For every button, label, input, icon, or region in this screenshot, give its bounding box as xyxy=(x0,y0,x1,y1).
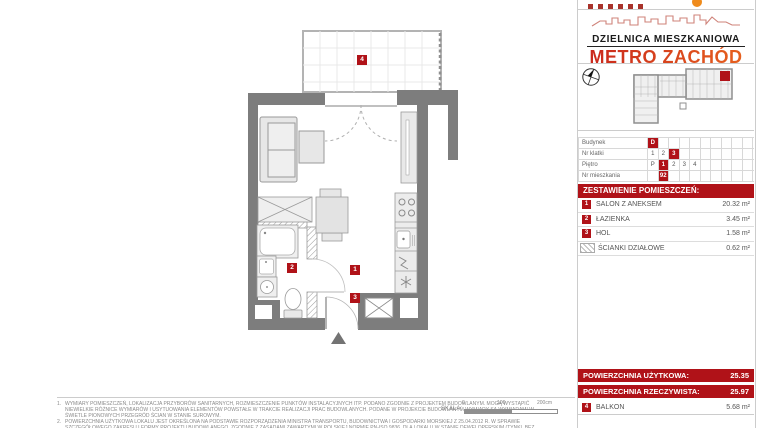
unit-grid-cell xyxy=(743,171,754,181)
unit-grid-cell xyxy=(701,171,712,181)
unit-grid-cell: 2 xyxy=(659,149,670,159)
usable-area-value: 25.35 xyxy=(730,371,749,380)
unit-grid-cell xyxy=(722,138,733,148)
dining-set xyxy=(316,189,348,241)
room-area-value: 1.58 m² xyxy=(726,230,754,237)
footnote-number: 2. xyxy=(57,419,65,428)
room-row: 1SALON Z ANEKSEM20.32 m² xyxy=(578,198,754,213)
cropped-logo-orange-dot-icon xyxy=(692,0,702,7)
brand-logo: DZIELNICA MIESZKANIOWA METRO ZACHÓD xyxy=(578,10,754,64)
room-name: ŁAZIENKA xyxy=(596,216,726,223)
unit-grid-cell xyxy=(711,171,722,181)
unit-grid-row: PiętroP1234 xyxy=(579,160,754,171)
unit-grid-cell xyxy=(732,171,743,181)
total-usable-area-bar: POWIERZCHNIA UŻYTKOWA: 25.35 xyxy=(578,369,754,382)
actual-area-label: POWIERZCHNIA RZECZYWISTA: xyxy=(583,387,700,396)
unit-grid-cell: 1 xyxy=(648,149,659,159)
unit-grid-cell xyxy=(743,138,754,148)
unit-grid-cell xyxy=(722,171,733,181)
unit-grid-row-label: Budynek xyxy=(579,138,648,148)
bathroom-door xyxy=(312,259,345,292)
scale-bar-filled-half xyxy=(465,410,512,413)
unit-grid-cell xyxy=(711,138,722,148)
total-actual-area-bar: POWIERZCHNIA RZECZYWISTA: 25.97 xyxy=(578,385,754,398)
room-area-value: 3.45 m² xyxy=(726,216,754,223)
footnote-item: 2.POWIERZCHNIA UŻYTKOWA LOKALU JEST OKRE… xyxy=(57,419,535,428)
balcony-area-value: 5.68 m² xyxy=(726,404,754,411)
toilet xyxy=(284,289,302,319)
room-number: 1 xyxy=(582,200,591,209)
room-row: ŚCIANKI DZIAŁOWE0.62 m² xyxy=(578,242,754,257)
room-area-value: 0.62 m² xyxy=(726,245,754,252)
room-row: 2ŁAZIENKA3.45 m² xyxy=(578,213,754,228)
compass-icon xyxy=(580,66,602,88)
room-number: 2 xyxy=(582,215,591,224)
unit-grid-cell xyxy=(711,149,722,159)
brand-name: DZIELNICA MIESZKANIOWA xyxy=(578,34,754,45)
unit-grid-cell xyxy=(743,160,754,170)
balcony-name: BALKON xyxy=(596,404,726,411)
plan-label-hol: 3 xyxy=(350,293,360,303)
unit-grid-cell xyxy=(711,160,722,170)
wall-niche-right xyxy=(400,298,418,318)
shaft xyxy=(365,298,393,318)
unit-grid-cell xyxy=(732,160,743,170)
scale-tick-0: 0 xyxy=(462,400,465,406)
cropped-logo xyxy=(578,0,754,10)
building-site-plan xyxy=(628,67,744,125)
unit-grid-row: Nr mieszkania92 xyxy=(579,171,754,182)
unit-grid: BudynekDNr klatki123PiętroP1234Nr mieszk… xyxy=(578,137,754,182)
unit-grid-cell xyxy=(743,149,754,159)
unit-grid-cell xyxy=(701,149,712,159)
cropped-logo-text-stubs xyxy=(588,4,646,9)
unit-grid-row-label: Nr klatki xyxy=(579,149,648,159)
unit-grid-cell xyxy=(659,138,670,148)
floor-plan-sheet: 4 1 2 3 DZIELNICA MIESZKANIOWA METRO ZAC… xyxy=(0,0,760,428)
skyline-icon xyxy=(588,12,744,28)
partition-hatch-swatch xyxy=(580,243,595,253)
actual-area-value: 25.97 xyxy=(730,387,749,396)
unit-grid-cell: D xyxy=(648,138,659,148)
highlighted-unit xyxy=(720,71,730,81)
room-area-value: 20.32 m² xyxy=(722,201,754,208)
room-name: SALON Z ANEKSEM xyxy=(596,201,722,208)
footnote-text: POWIERZCHNIA UŻYTKOWA LOKALU JEST OKREŚL… xyxy=(65,419,535,428)
unit-grid-row-label: Nr mieszkania xyxy=(579,171,648,181)
plan-label-salon: 1 xyxy=(350,265,360,275)
unit-grid-cell xyxy=(680,171,691,181)
unit-grid-row-label: Piętro xyxy=(579,160,648,170)
unit-grid-cell xyxy=(701,138,712,148)
wardrobe xyxy=(258,197,312,222)
unit-grid-cell xyxy=(680,149,691,159)
unit-grid-cell: P xyxy=(648,160,659,170)
scale-bar xyxy=(464,409,558,414)
footnote-number: 1. xyxy=(57,401,65,419)
bathtub xyxy=(257,225,298,258)
unit-grid-cell xyxy=(690,171,701,181)
balcony xyxy=(303,31,441,92)
unit-grid-row: Nr klatki123 xyxy=(579,149,754,160)
room-row: 3HOL1.58 m² xyxy=(578,227,754,242)
unit-grid-cell xyxy=(669,171,680,181)
unit-grid-cell xyxy=(701,160,712,170)
rooms-list: 1SALON Z ANEKSEM20.32 m²2ŁAZIENKA3.45 m²… xyxy=(578,198,754,256)
unit-grid-cell: 1 xyxy=(659,160,670,170)
kitchen-run xyxy=(395,193,417,293)
plan-label-balkon: 4 xyxy=(357,55,367,65)
room-name: ŚCIANKI DZIAŁOWE xyxy=(598,245,726,252)
bathroom-sink xyxy=(257,256,276,277)
unit-grid-row: BudynekD xyxy=(579,138,754,149)
unit-grid-cell xyxy=(690,138,701,148)
rooms-header: ZESTAWIENIE POMIESZCZEŃ: xyxy=(578,184,754,198)
unit-grid-cell: 4 xyxy=(690,160,701,170)
scale-label: SKALA: xyxy=(441,406,462,412)
washing-machine xyxy=(257,277,277,297)
balcony-number: 4 xyxy=(582,403,591,412)
unit-grid-cell xyxy=(669,138,680,148)
unit-grid-cell: 3 xyxy=(669,149,680,159)
usable-area-label: POWIERZCHNIA UŻYTKOWA: xyxy=(583,371,689,380)
coffee-table xyxy=(299,131,324,163)
unit-grid-cell xyxy=(722,160,733,170)
unit-grid-cell xyxy=(680,138,691,148)
scale-tick-100: 100 xyxy=(497,400,505,406)
site-plan-box xyxy=(578,64,754,131)
unit-grid-cell xyxy=(732,149,743,159)
footer-divider xyxy=(57,397,575,398)
unit-grid-cell xyxy=(722,149,733,159)
wall-niche-left xyxy=(255,305,272,319)
unit-grid-cell: 92 xyxy=(659,171,670,181)
balcony-row: 4 BALKON 5.68 m² xyxy=(578,401,754,415)
balcony-door xyxy=(325,105,397,141)
plan-label-lazienka: 2 xyxy=(287,263,297,273)
unit-grid-cell xyxy=(648,171,659,181)
sofa xyxy=(260,117,297,182)
room-name: HOL xyxy=(596,230,726,237)
unit-grid-cell xyxy=(732,138,743,148)
tall-cabinet xyxy=(401,112,417,183)
unit-grid-cell: 3 xyxy=(680,160,691,170)
room-number: 3 xyxy=(582,229,591,238)
unit-grid-cell: 2 xyxy=(669,160,680,170)
unit-grid-cell xyxy=(690,149,701,159)
entrance-arrow-icon xyxy=(331,332,346,344)
scale-tick-200: 200cm xyxy=(537,400,552,406)
